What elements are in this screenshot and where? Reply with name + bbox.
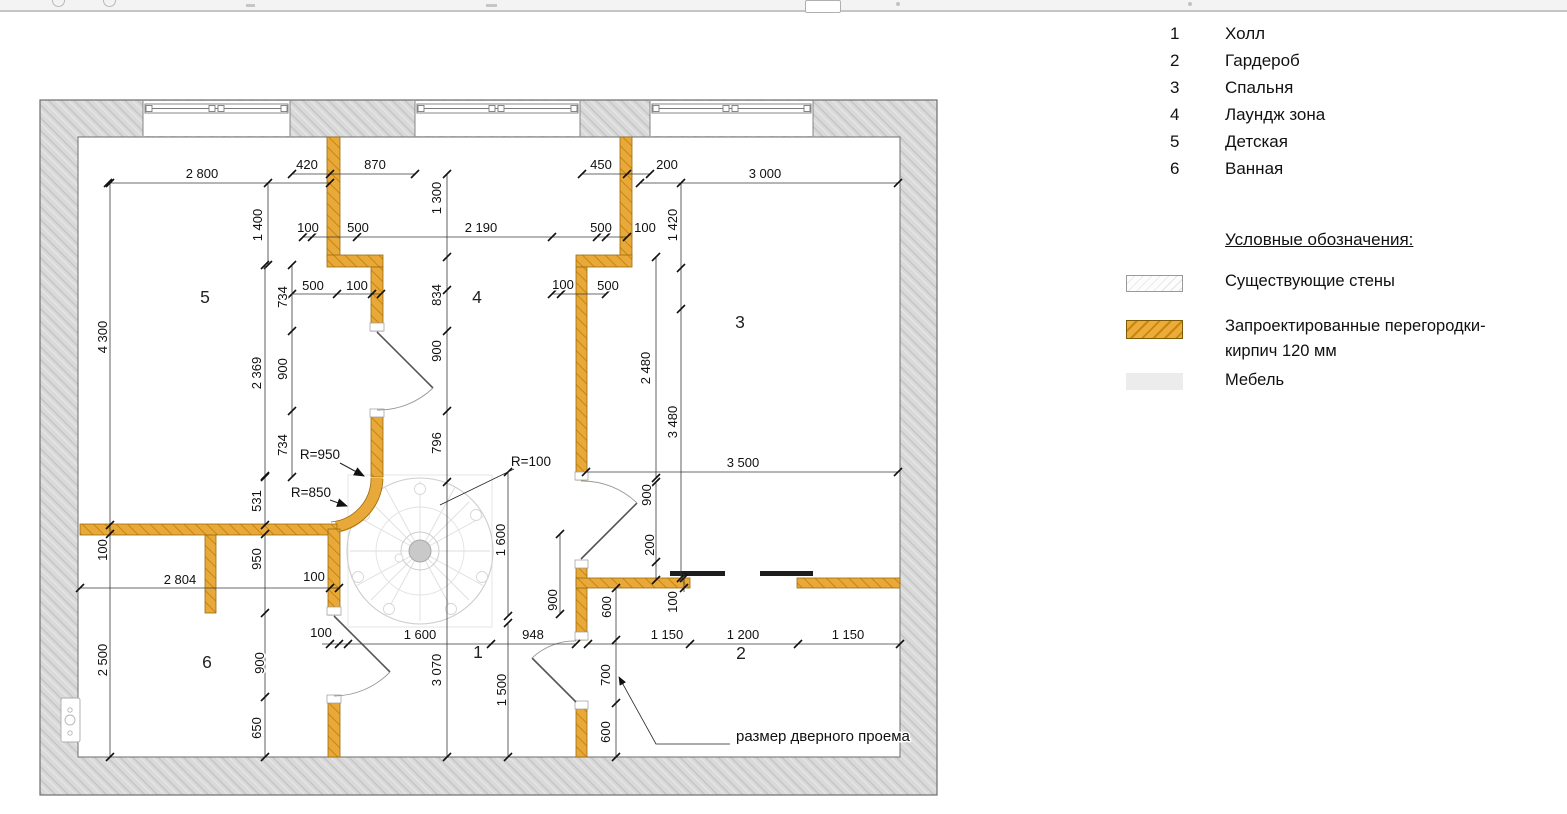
dimension-label: 500	[597, 278, 619, 293]
dimension-label: 3 070	[429, 654, 444, 687]
existing-walls	[40, 100, 937, 795]
dimension-label: 100	[665, 591, 680, 613]
dimension-label: 600	[599, 596, 614, 618]
dimension-label: 3 480	[665, 406, 680, 439]
dimension-label: 3 500	[727, 455, 760, 470]
radius-annotation: R=100	[511, 454, 551, 469]
windows	[143, 101, 813, 136]
dimension-label: 834	[429, 284, 444, 306]
dimension-label: 1 420	[665, 209, 680, 242]
dimension-label: 500	[302, 278, 324, 293]
dimension-label: 1 400	[250, 209, 265, 242]
door-opening-note: размер дверного проема	[736, 728, 911, 745]
dimension-label: 2 500	[95, 644, 110, 677]
plan-room-number: 1	[473, 642, 483, 662]
dimension-label: 870	[364, 157, 386, 172]
dimension-label: 100	[552, 277, 574, 292]
dimension-label: 420	[296, 157, 318, 172]
radius-annotation: R=850	[291, 485, 331, 500]
dimension-label: 900	[275, 358, 290, 380]
dimension-label: 100	[297, 220, 319, 235]
room-number-labels: 543612	[200, 287, 746, 672]
dimension-label: 2 804	[164, 572, 197, 587]
plan-room-number: 2	[736, 643, 746, 663]
dimension-label: 1 600	[404, 627, 437, 642]
dimension-label: 600	[598, 721, 613, 743]
dimension-label: 900	[252, 652, 267, 674]
door-room5	[377, 332, 433, 410]
sliding-door-panels	[670, 571, 813, 576]
dimension-label: 2 369	[249, 357, 264, 390]
radius-annotation: R=950	[300, 447, 340, 462]
dimension-label: 1 150	[651, 627, 684, 642]
dimension-label: 900	[429, 340, 444, 362]
plan-room-number: 4	[472, 287, 482, 307]
dimension-label: 2 800	[186, 166, 219, 181]
dimension-label: 900	[639, 484, 654, 506]
dimension-label: 700	[598, 664, 613, 686]
dimension-label: 500	[347, 220, 369, 235]
dimension-label: 1 300	[429, 182, 444, 215]
window-1	[143, 101, 290, 136]
dimension-label: 200	[642, 534, 657, 556]
dimension-label: 1 500	[494, 674, 509, 707]
dimension-label: 500	[590, 220, 612, 235]
door-room6	[334, 616, 390, 696]
dimension-lines	[76, 170, 904, 761]
dimension-label: 3 000	[749, 166, 782, 181]
dimension-label: 531	[249, 490, 264, 512]
plan-room-number: 3	[735, 312, 745, 332]
dimension-label: 100	[346, 278, 368, 293]
wall-fixture	[61, 698, 80, 742]
dimension-label: 900	[545, 589, 560, 611]
dimension-label: 450	[590, 157, 612, 172]
dimension-label: 100	[310, 625, 332, 640]
door-room2	[532, 641, 576, 702]
dimension-label: 650	[249, 717, 264, 739]
plan-room-number: 6	[202, 652, 212, 672]
dimension-label: 948	[522, 627, 544, 642]
dimension-label: 734	[275, 286, 290, 308]
dimension-label: 100	[303, 569, 325, 584]
page: 2 8004208704502003 0001 4001 3001 420100…	[0, 0, 1567, 814]
dimension-label: 734	[275, 434, 290, 456]
dimension-label: 1 600	[493, 524, 508, 557]
window-2	[415, 101, 580, 136]
window-3	[650, 101, 813, 136]
dimension-label: 2 190	[465, 220, 498, 235]
dimension-label: 796	[429, 432, 444, 454]
dimension-label: 1 200	[727, 627, 760, 642]
dimension-label: 100	[634, 220, 656, 235]
dimension-label: 1 150	[832, 627, 865, 642]
door-room3	[581, 481, 637, 559]
dimension-label: 100	[95, 539, 110, 561]
dimension-label: 4 300	[95, 321, 110, 354]
floorplan-drawing: 2 8004208704502003 0001 4001 3001 420100…	[0, 0, 1567, 814]
plan-room-number: 5	[200, 287, 210, 307]
dimension-label: 950	[249, 548, 264, 570]
dimension-label: 2 480	[638, 352, 653, 385]
dimension-label: 200	[656, 157, 678, 172]
